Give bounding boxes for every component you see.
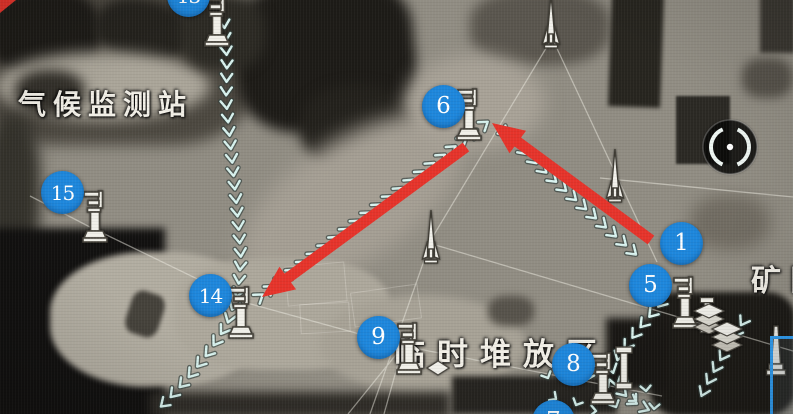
map-marker-9[interactable]: 9 <box>357 316 400 359</box>
marker-number: 14 <box>199 286 222 306</box>
marker-number: 5 <box>643 274 658 297</box>
game-map: 气候监测站 临时堆放区 矿区 <box>0 0 793 414</box>
map-marker-5[interactable]: 5 <box>629 264 672 307</box>
map-marker-6[interactable]: 6 <box>422 85 465 128</box>
marker-number: 1 <box>674 232 689 255</box>
selection-box <box>770 336 793 414</box>
marker-number: 9 <box>371 326 386 349</box>
red-arrow-layer <box>0 0 793 414</box>
map-marker-1[interactable]: 1 <box>660 222 703 265</box>
marker-number: 8 <box>566 353 581 376</box>
marker-number: 15 <box>51 183 74 203</box>
marker-number: 7 <box>546 410 561 414</box>
marker-number: 13 <box>177 0 200 6</box>
map-marker-8[interactable]: 8 <box>552 343 595 386</box>
map-marker-15[interactable]: 15 <box>41 171 84 214</box>
map-marker-14[interactable]: 14 <box>189 274 232 317</box>
marker-number: 6 <box>436 95 451 118</box>
